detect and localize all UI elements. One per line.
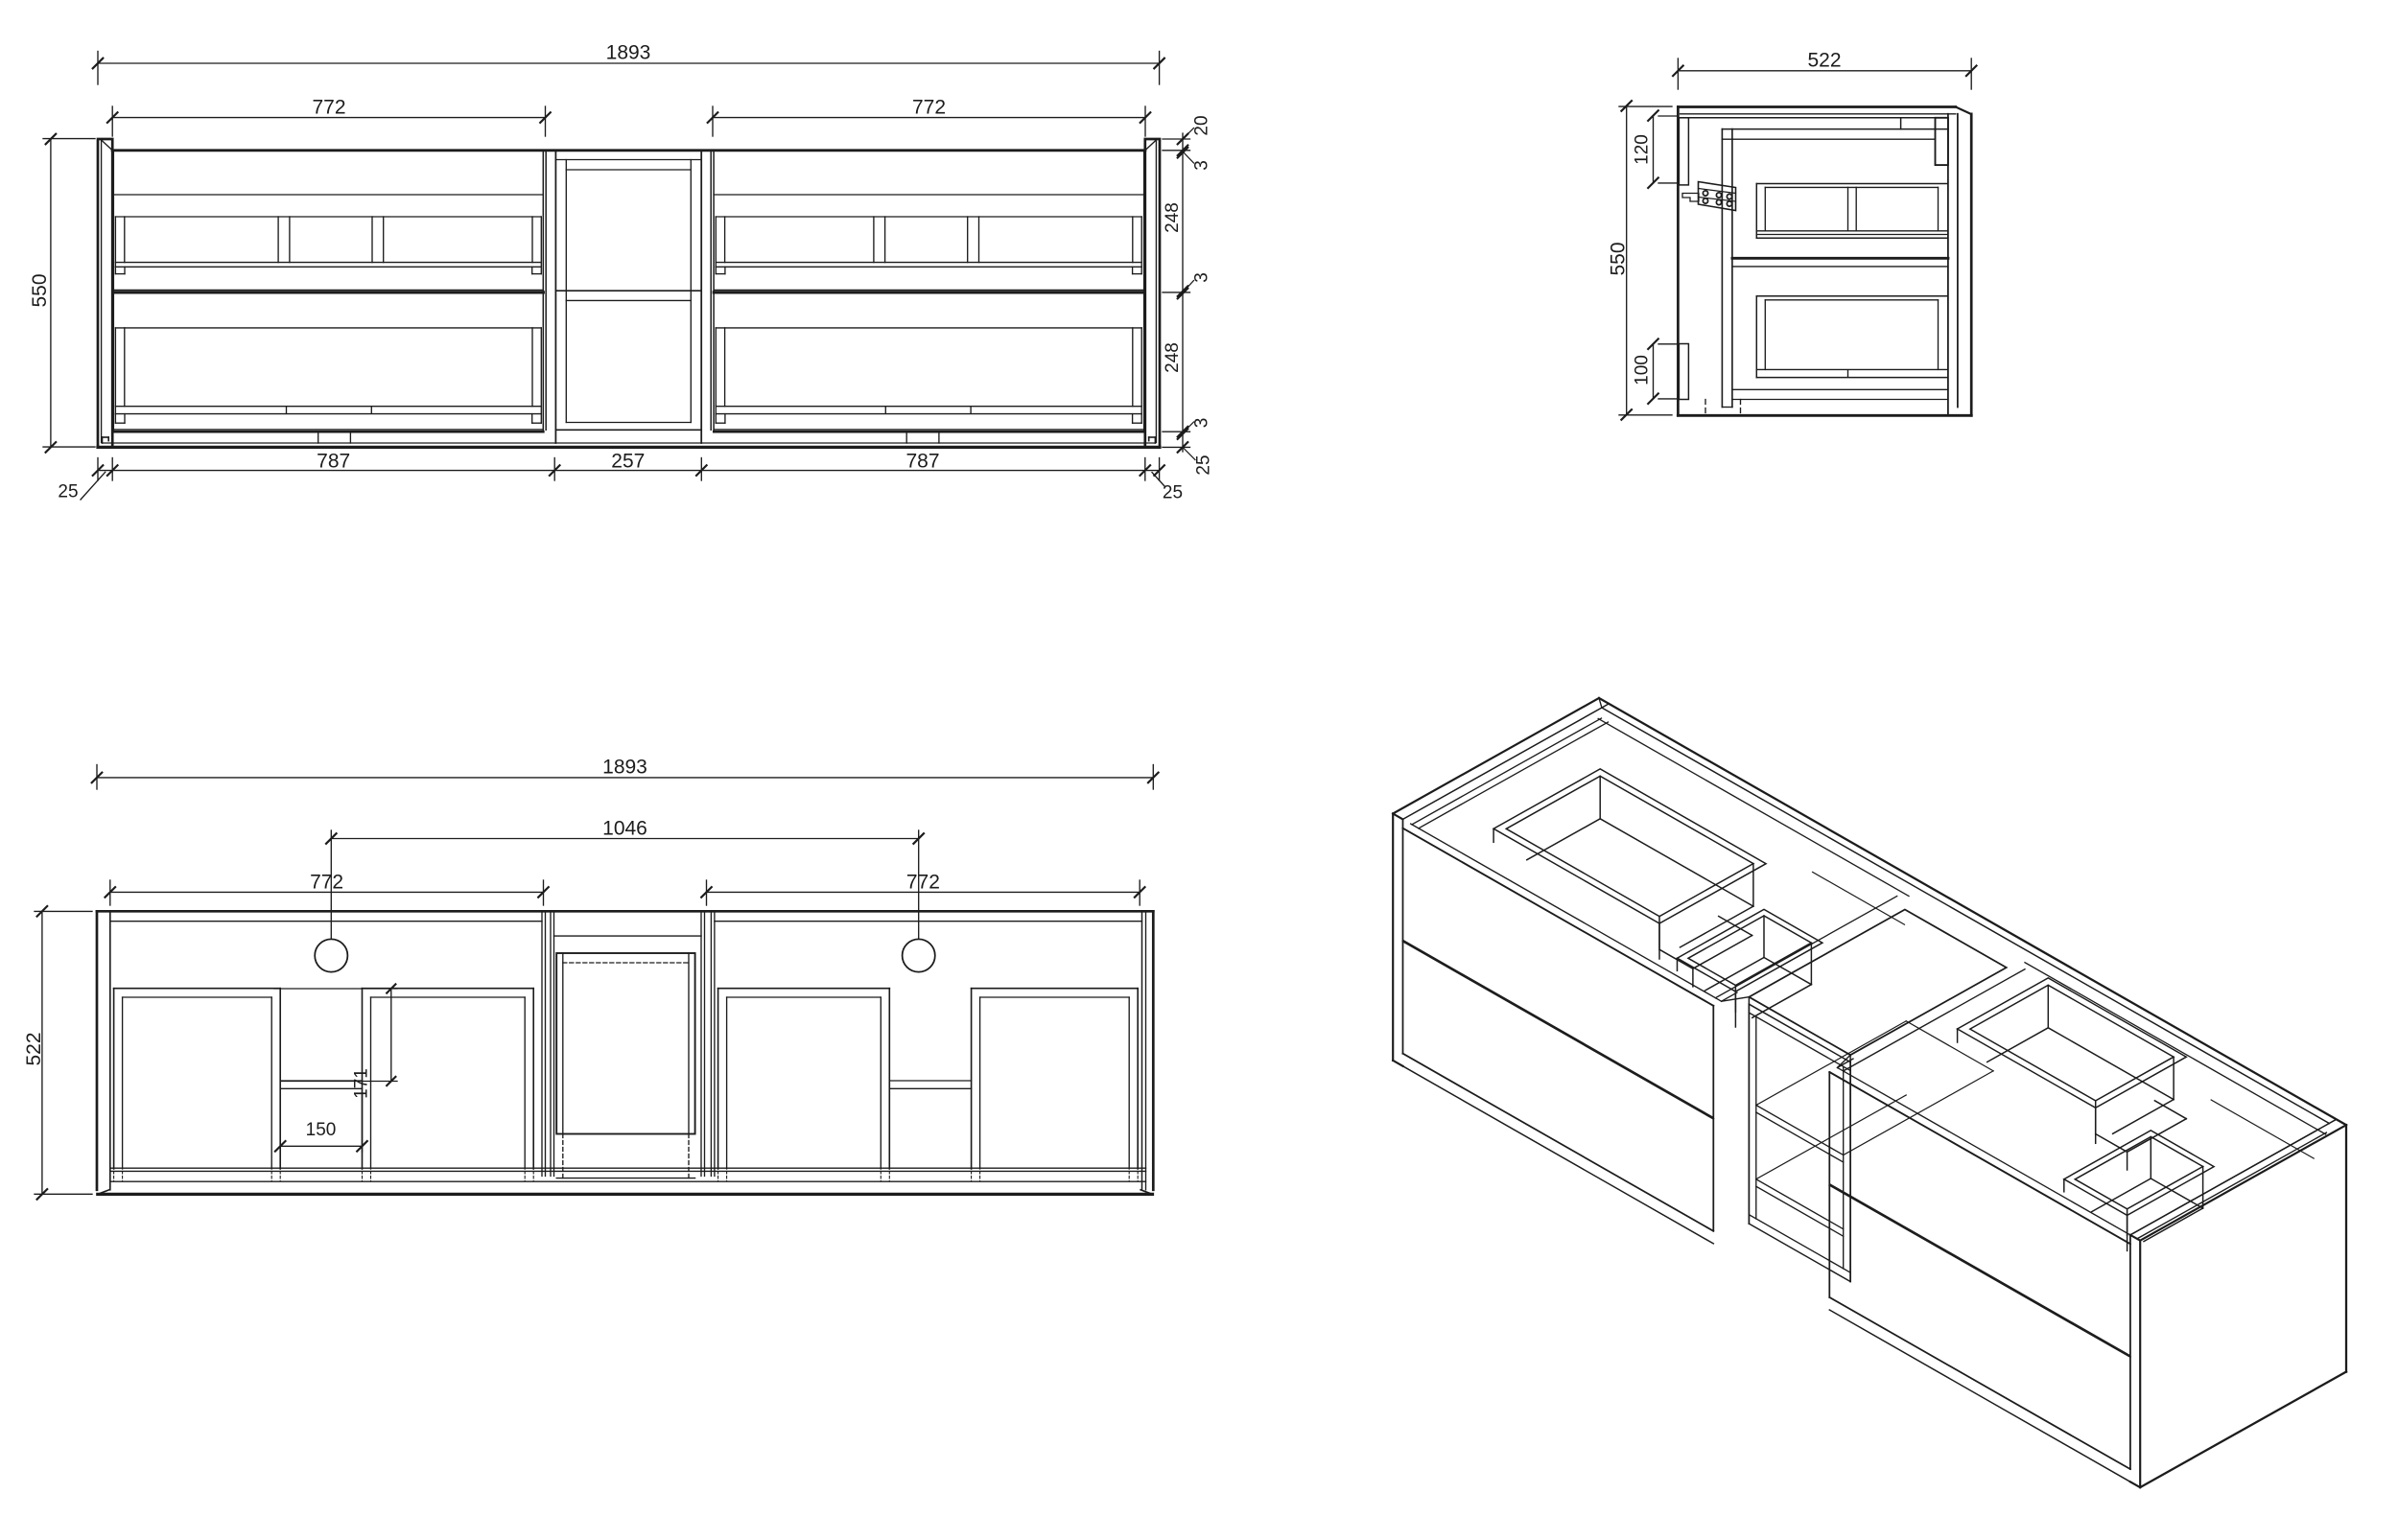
svg-text:25: 25 (58, 482, 78, 502)
svg-text:25: 25 (1163, 483, 1183, 503)
svg-text:120: 120 (1633, 134, 1653, 165)
svg-text:787: 787 (905, 451, 939, 473)
svg-text:1893: 1893 (602, 757, 647, 779)
svg-text:1046: 1046 (602, 818, 647, 840)
svg-text:550: 550 (1608, 242, 1630, 275)
svg-text:522: 522 (1807, 50, 1841, 72)
svg-text:248: 248 (1163, 342, 1183, 373)
svg-text:3: 3 (1192, 418, 1212, 429)
svg-text:257: 257 (611, 451, 645, 473)
svg-text:772: 772 (310, 872, 343, 894)
svg-text:772: 772 (912, 97, 946, 119)
svg-text:1893: 1893 (606, 42, 651, 64)
svg-text:772: 772 (312, 97, 345, 119)
svg-text:787: 787 (317, 451, 350, 473)
svg-text:248: 248 (1163, 202, 1183, 233)
svg-text:3: 3 (1192, 160, 1212, 171)
svg-text:100: 100 (1633, 355, 1653, 385)
svg-text:772: 772 (906, 872, 940, 894)
svg-text:550: 550 (29, 273, 51, 307)
svg-text:20: 20 (1192, 115, 1212, 135)
svg-text:522: 522 (23, 1032, 45, 1065)
svg-text:150: 150 (306, 1120, 337, 1140)
svg-text:3: 3 (1192, 272, 1212, 283)
svg-text:25: 25 (1194, 455, 1214, 475)
